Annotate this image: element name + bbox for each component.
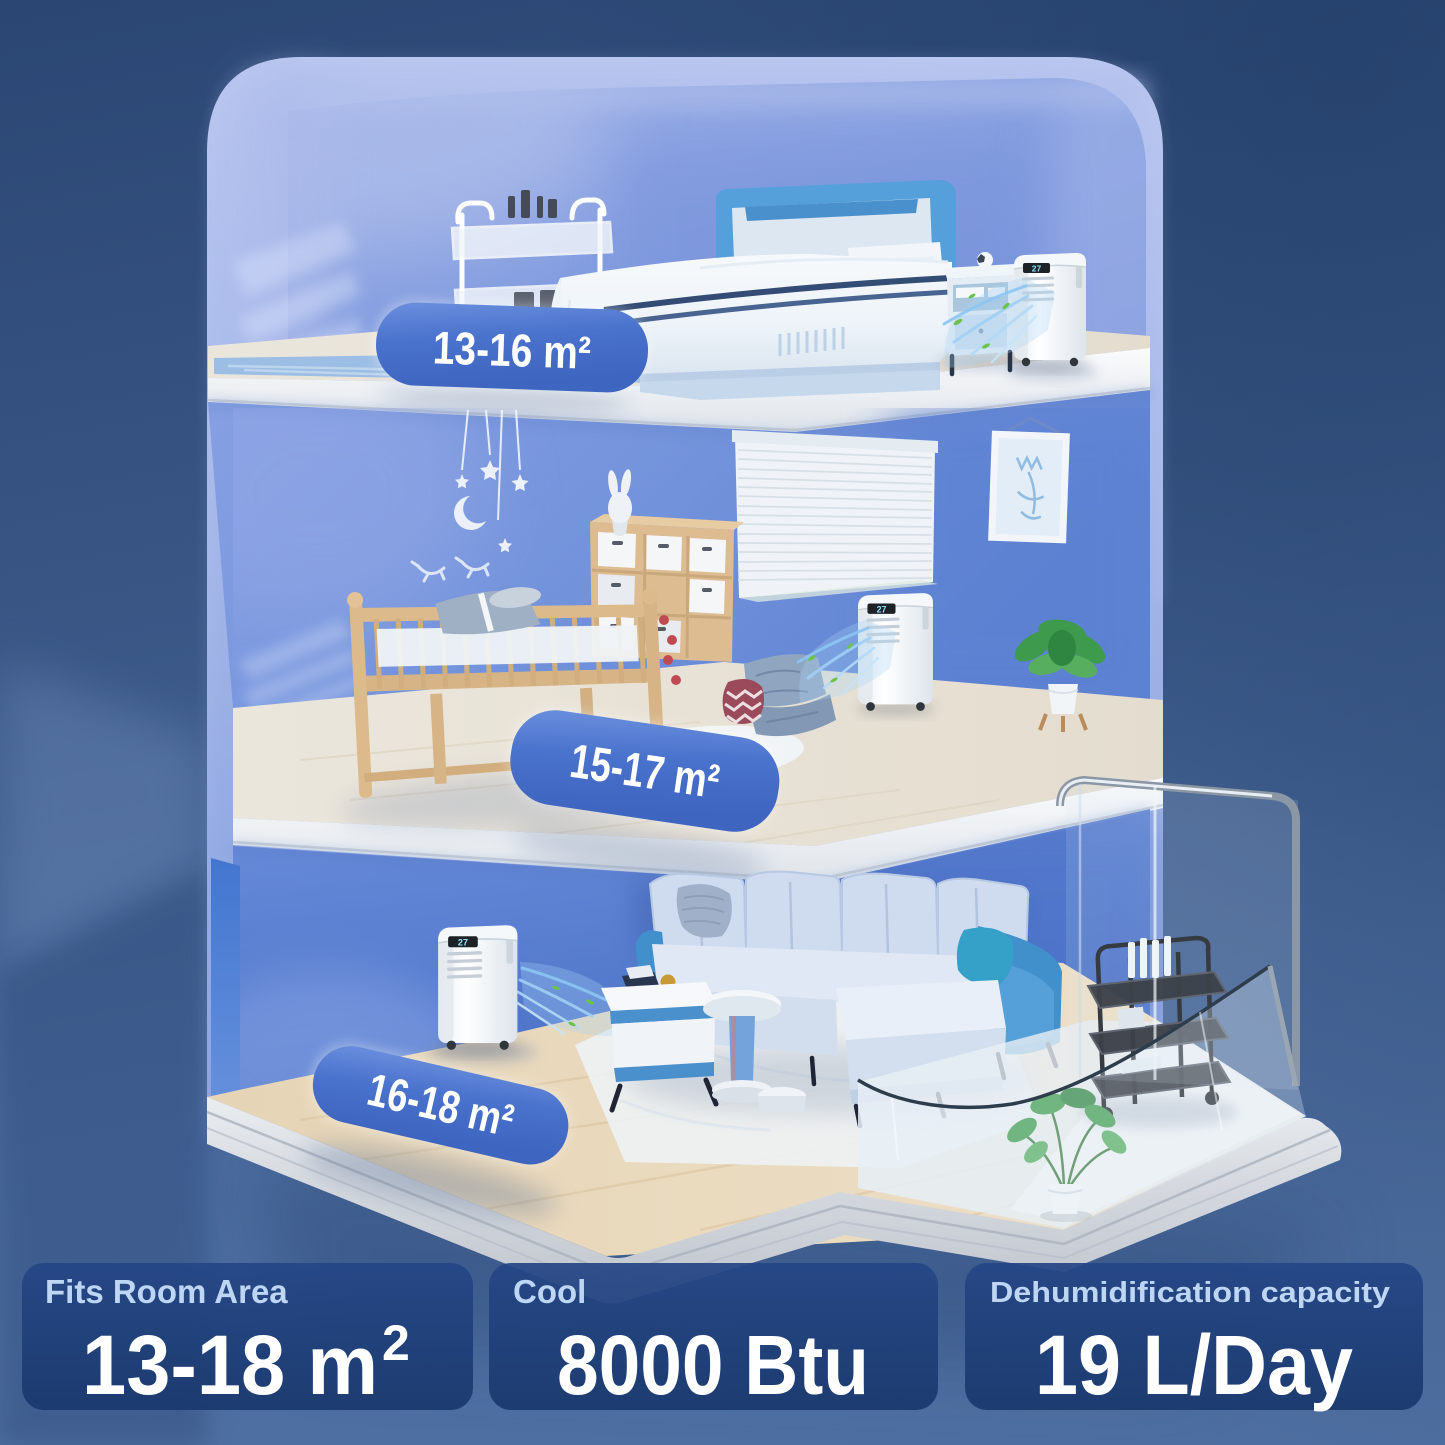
svg-text:2: 2: [382, 1315, 410, 1371]
svg-text:Fits Room Area: Fits Room Area: [45, 1273, 288, 1310]
svg-text:8000 Btu: 8000 Btu: [557, 1318, 869, 1412]
svg-text:13-16 m²: 13-16 m²: [432, 321, 592, 378]
svg-text:Dehumidification capacity: Dehumidification capacity: [990, 1277, 1390, 1309]
svg-text:Cool: Cool: [513, 1273, 586, 1310]
svg-text:13-18 m: 13-18 m: [82, 1318, 378, 1412]
svg-text:19 L/Day: 19 L/Day: [1035, 1318, 1353, 1412]
